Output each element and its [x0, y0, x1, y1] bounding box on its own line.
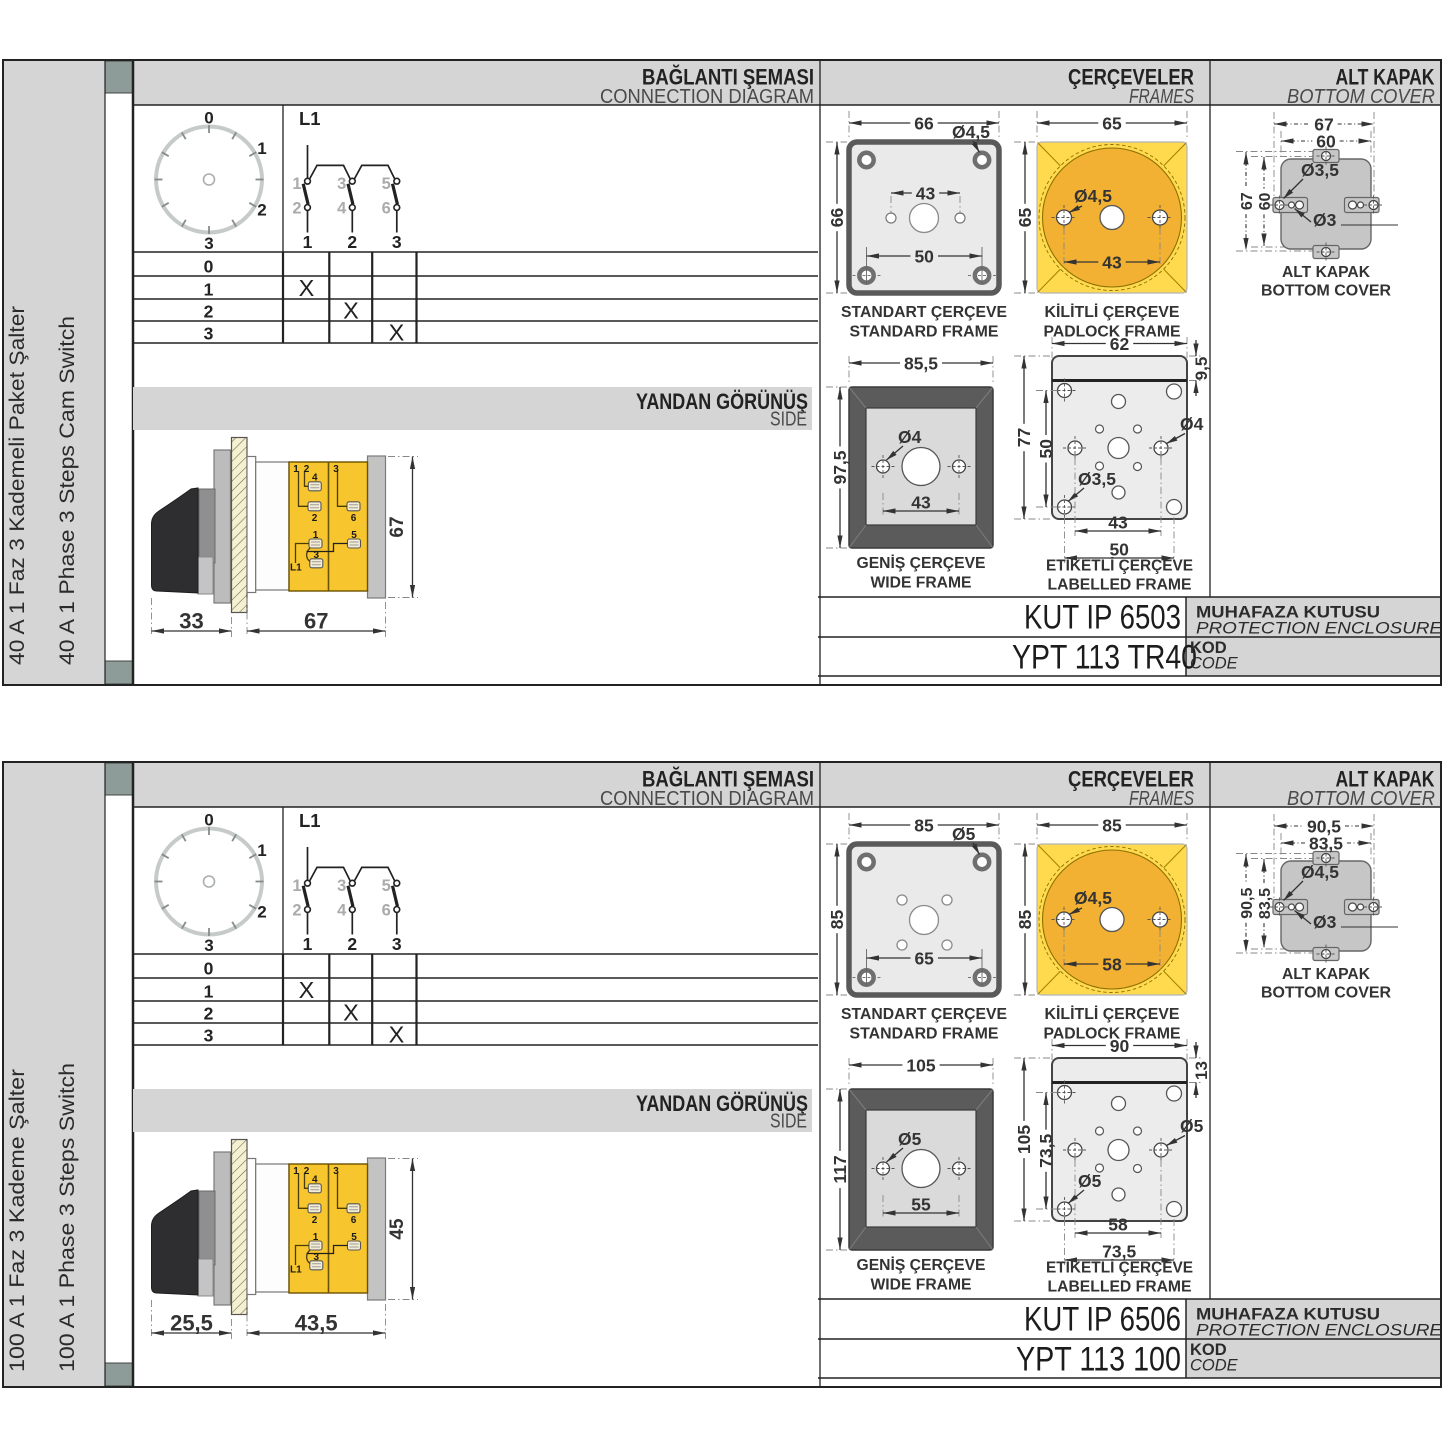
svg-text:X: X [343, 1000, 359, 1026]
svg-text:FRAMES: FRAMES [1129, 86, 1195, 108]
svg-text:6: 6 [351, 513, 357, 524]
svg-text:105: 105 [906, 1056, 935, 1076]
svg-text:100 A 1 Faz 3 Kademe Şalter: 100 A 1 Faz 3 Kademe Şalter [5, 1069, 29, 1372]
svg-text:2: 2 [347, 232, 357, 252]
svg-text:85,5: 85,5 [904, 354, 938, 374]
svg-text:2: 2 [312, 1215, 318, 1226]
svg-text:KUT IP 6506: KUT IP 6506 [1024, 1301, 1181, 1339]
svg-text:Ø4,5: Ø4,5 [1074, 888, 1112, 908]
svg-text:60: 60 [1257, 193, 1274, 211]
svg-text:0: 0 [204, 959, 214, 979]
svg-text:LABELLED FRAME: LABELLED FRAME [1048, 1279, 1192, 1296]
svg-text:77: 77 [1014, 428, 1034, 447]
svg-text:25,5: 25,5 [170, 1311, 213, 1336]
svg-text:Ø5: Ø5 [898, 1129, 922, 1149]
svg-text:50: 50 [1109, 540, 1129, 560]
svg-text:83,5: 83,5 [1309, 834, 1343, 854]
svg-text:YPT 113 100: YPT 113 100 [1016, 1341, 1181, 1379]
svg-text:5: 5 [382, 877, 391, 895]
svg-text:2: 2 [312, 513, 318, 524]
svg-text:62: 62 [1110, 334, 1130, 354]
svg-text:Ø4,5: Ø4,5 [952, 122, 990, 142]
svg-text:X: X [389, 320, 405, 346]
svg-text:2: 2 [204, 1004, 214, 1024]
svg-text:Ø3,5: Ø3,5 [1078, 469, 1116, 489]
svg-text:117: 117 [830, 1155, 850, 1183]
svg-text:SIDE: SIDE [770, 1111, 807, 1133]
svg-text:STANDART ÇERÇEVE: STANDART ÇERÇEVE [841, 304, 1007, 321]
svg-text:GENİŞ ÇERÇEVE: GENİŞ ÇERÇEVE [857, 554, 986, 572]
svg-text:1: 1 [303, 934, 313, 954]
svg-text:4: 4 [337, 902, 347, 920]
svg-text:5: 5 [351, 1232, 357, 1243]
svg-text:STANDARD FRAME: STANDARD FRAME [850, 324, 999, 341]
svg-text:83,5: 83,5 [1257, 888, 1274, 919]
svg-text:97,5: 97,5 [830, 450, 850, 484]
svg-text:6: 6 [382, 200, 391, 218]
svg-text:3: 3 [333, 464, 339, 475]
svg-text:2: 2 [292, 902, 301, 920]
svg-text:50: 50 [914, 247, 934, 267]
svg-text:3: 3 [204, 234, 213, 253]
svg-text:PROTECTION ENCLOSURE: PROTECTION ENCLOSURE [1196, 1321, 1443, 1340]
svg-text:Ø4: Ø4 [898, 427, 922, 447]
svg-text:1: 1 [292, 175, 301, 193]
svg-text:Ø3: Ø3 [1313, 912, 1337, 932]
svg-text:Ø5: Ø5 [1180, 1116, 1204, 1136]
svg-text:STANDARD FRAME: STANDARD FRAME [850, 1026, 999, 1043]
svg-text:55: 55 [911, 1195, 931, 1215]
svg-text:BOTTOM COVER: BOTTOM COVER [1261, 283, 1391, 300]
svg-text:X: X [299, 275, 315, 301]
svg-text:6: 6 [382, 902, 391, 920]
svg-text:CODE: CODE [1190, 1357, 1239, 1375]
svg-text:2: 2 [204, 302, 214, 322]
svg-text:2: 2 [257, 201, 266, 220]
svg-text:90: 90 [1110, 1036, 1130, 1056]
svg-text:2: 2 [304, 464, 310, 475]
svg-text:ALT KAPAK: ALT KAPAK [1282, 966, 1370, 983]
svg-text:L1: L1 [290, 1265, 302, 1276]
svg-text:GENİŞ ÇERÇEVE: GENİŞ ÇERÇEVE [857, 1256, 986, 1274]
svg-text:5: 5 [382, 175, 391, 193]
svg-text:BOTTOM COVER: BOTTOM COVER [1287, 86, 1435, 108]
svg-text:4: 4 [337, 200, 347, 218]
svg-text:43: 43 [1108, 513, 1128, 533]
svg-text:90,5: 90,5 [1239, 888, 1256, 919]
svg-text:40 A 1 Faz 3 Kademeli Paket Şa: 40 A 1 Faz 3 Kademeli Paket Şalter [5, 306, 29, 665]
svg-text:0: 0 [204, 811, 213, 830]
svg-text:3: 3 [204, 1026, 214, 1046]
svg-text:65: 65 [1102, 114, 1122, 134]
svg-text:0: 0 [204, 257, 214, 277]
svg-text:5: 5 [351, 530, 357, 541]
svg-text:100 A 1 Phase 3 Steps Switch: 100 A 1 Phase 3 Steps Switch [55, 1063, 79, 1372]
svg-text:Ø4: Ø4 [1180, 414, 1204, 434]
svg-text:Ø5: Ø5 [1078, 1171, 1102, 1191]
svg-text:2: 2 [347, 934, 357, 954]
svg-text:L1: L1 [290, 563, 302, 574]
svg-text:SIDE: SIDE [770, 409, 807, 431]
svg-text:1: 1 [303, 232, 313, 252]
svg-text:PROTECTION ENCLOSURE: PROTECTION ENCLOSURE [1196, 619, 1443, 638]
svg-text:STANDART ÇERÇEVE: STANDART ÇERÇEVE [841, 1006, 1007, 1023]
svg-text:X: X [299, 977, 315, 1003]
svg-text:4: 4 [312, 1175, 318, 1186]
svg-text:ALT KAPAK: ALT KAPAK [1282, 264, 1370, 281]
svg-text:CODE: CODE [1190, 655, 1239, 673]
svg-text:67: 67 [1239, 192, 1256, 210]
svg-text:73,5: 73,5 [1036, 1134, 1056, 1168]
svg-text:1: 1 [292, 877, 301, 895]
svg-text:1: 1 [204, 280, 214, 300]
svg-text:105: 105 [1014, 1125, 1034, 1154]
svg-text:L1: L1 [299, 810, 321, 831]
svg-text:1: 1 [293, 464, 299, 475]
svg-text:3: 3 [314, 1252, 320, 1263]
svg-text:6: 6 [351, 1215, 357, 1226]
svg-text:73,5: 73,5 [1102, 1242, 1136, 1262]
svg-text:Ø4,5: Ø4,5 [1074, 186, 1112, 206]
svg-text:43: 43 [911, 493, 931, 513]
svg-text:3: 3 [337, 877, 346, 895]
svg-text:3: 3 [337, 175, 346, 193]
svg-text:50: 50 [1036, 439, 1056, 459]
svg-text:X: X [389, 1022, 405, 1048]
svg-text:66: 66 [914, 114, 934, 134]
svg-text:1: 1 [204, 982, 214, 1002]
svg-text:1: 1 [257, 139, 266, 158]
svg-text:1: 1 [313, 1232, 319, 1243]
svg-text:43: 43 [1102, 253, 1122, 273]
svg-text:WIDE FRAME: WIDE FRAME [871, 575, 972, 592]
svg-text:60: 60 [1316, 132, 1336, 152]
svg-text:Ø3,5: Ø3,5 [1301, 160, 1339, 180]
svg-text:9,5: 9,5 [1192, 357, 1211, 381]
svg-text:1: 1 [293, 1166, 299, 1177]
svg-text:67: 67 [387, 516, 408, 537]
svg-text:YPT 113 TR40: YPT 113 TR40 [1012, 639, 1197, 677]
svg-text:43,5: 43,5 [295, 1311, 338, 1336]
svg-text:3: 3 [333, 1166, 339, 1177]
svg-text:85: 85 [1015, 910, 1035, 930]
svg-text:4: 4 [312, 473, 318, 484]
svg-text:BOTTOM COVER: BOTTOM COVER [1261, 985, 1391, 1002]
svg-text:43: 43 [916, 184, 936, 204]
svg-text:13: 13 [1192, 1061, 1211, 1080]
svg-text:85: 85 [914, 816, 934, 836]
svg-text:65: 65 [914, 949, 934, 969]
svg-text:3: 3 [204, 936, 213, 955]
svg-text:3: 3 [392, 232, 402, 252]
svg-text:KİLİTLİ ÇERÇEVE: KİLİTLİ ÇERÇEVE [1045, 303, 1180, 321]
svg-text:66: 66 [827, 208, 847, 228]
svg-text:BOTTOM COVER: BOTTOM COVER [1287, 788, 1435, 810]
svg-text:LABELLED FRAME: LABELLED FRAME [1048, 577, 1192, 594]
svg-text:2: 2 [257, 903, 266, 922]
svg-text:65: 65 [1015, 208, 1035, 228]
svg-text:67: 67 [304, 609, 328, 634]
svg-text:ETİKETLİ ÇERÇEVE: ETİKETLİ ÇERÇEVE [1046, 557, 1193, 575]
svg-text:Ø5: Ø5 [952, 824, 976, 844]
svg-text:3: 3 [392, 934, 402, 954]
svg-text:3: 3 [314, 550, 320, 561]
svg-text:L1: L1 [299, 108, 321, 129]
svg-text:2: 2 [304, 1166, 310, 1177]
svg-text:2: 2 [292, 200, 301, 218]
svg-text:1: 1 [313, 530, 319, 541]
svg-text:Ø4,5: Ø4,5 [1301, 862, 1339, 882]
svg-text:KUT IP 6503: KUT IP 6503 [1024, 599, 1181, 637]
svg-text:CONNECTION DIAGRAM: CONNECTION DIAGRAM [600, 86, 814, 108]
svg-text:58: 58 [1102, 955, 1122, 975]
svg-text:33: 33 [179, 609, 203, 634]
svg-text:85: 85 [827, 910, 847, 930]
svg-text:KİLİTLİ ÇERÇEVE: KİLİTLİ ÇERÇEVE [1045, 1005, 1180, 1023]
svg-text:40 A 1 Phase 3 Steps Cam Switc: 40 A 1 Phase 3 Steps Cam Switch [55, 316, 79, 665]
svg-text:0: 0 [204, 109, 213, 128]
svg-text:1: 1 [257, 841, 266, 860]
svg-text:Ø3: Ø3 [1313, 210, 1337, 230]
svg-text:3: 3 [204, 324, 214, 344]
svg-text:ETİKETLİ ÇERÇEVE: ETİKETLİ ÇERÇEVE [1046, 1259, 1193, 1277]
svg-text:FRAMES: FRAMES [1129, 788, 1195, 810]
svg-text:X: X [343, 298, 359, 324]
svg-text:WIDE FRAME: WIDE FRAME [871, 1277, 972, 1294]
svg-text:85: 85 [1102, 816, 1122, 836]
svg-text:CONNECTION DIAGRAM: CONNECTION DIAGRAM [600, 788, 814, 810]
svg-text:45: 45 [387, 1218, 408, 1240]
svg-text:58: 58 [1108, 1215, 1128, 1235]
